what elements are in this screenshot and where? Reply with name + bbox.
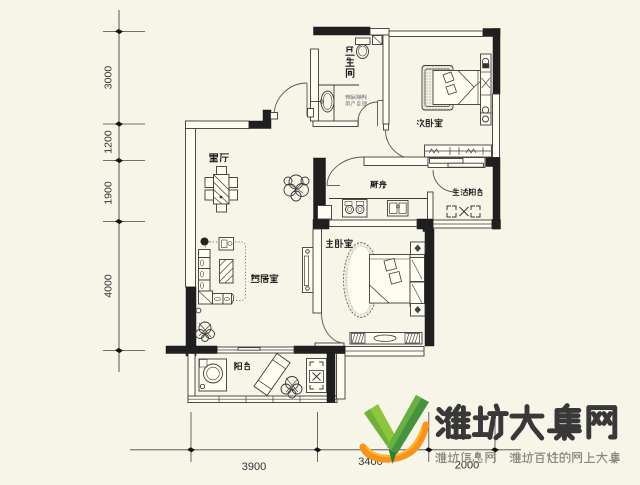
svg-text:2000: 2000	[455, 459, 479, 471]
svg-text:3000: 3000	[103, 66, 115, 90]
svg-text:1900: 1900	[103, 181, 115, 205]
svg-text:4000: 4000	[103, 274, 115, 298]
svg-text:1200: 1200	[103, 130, 115, 154]
svg-text:3900: 3900	[242, 461, 266, 473]
